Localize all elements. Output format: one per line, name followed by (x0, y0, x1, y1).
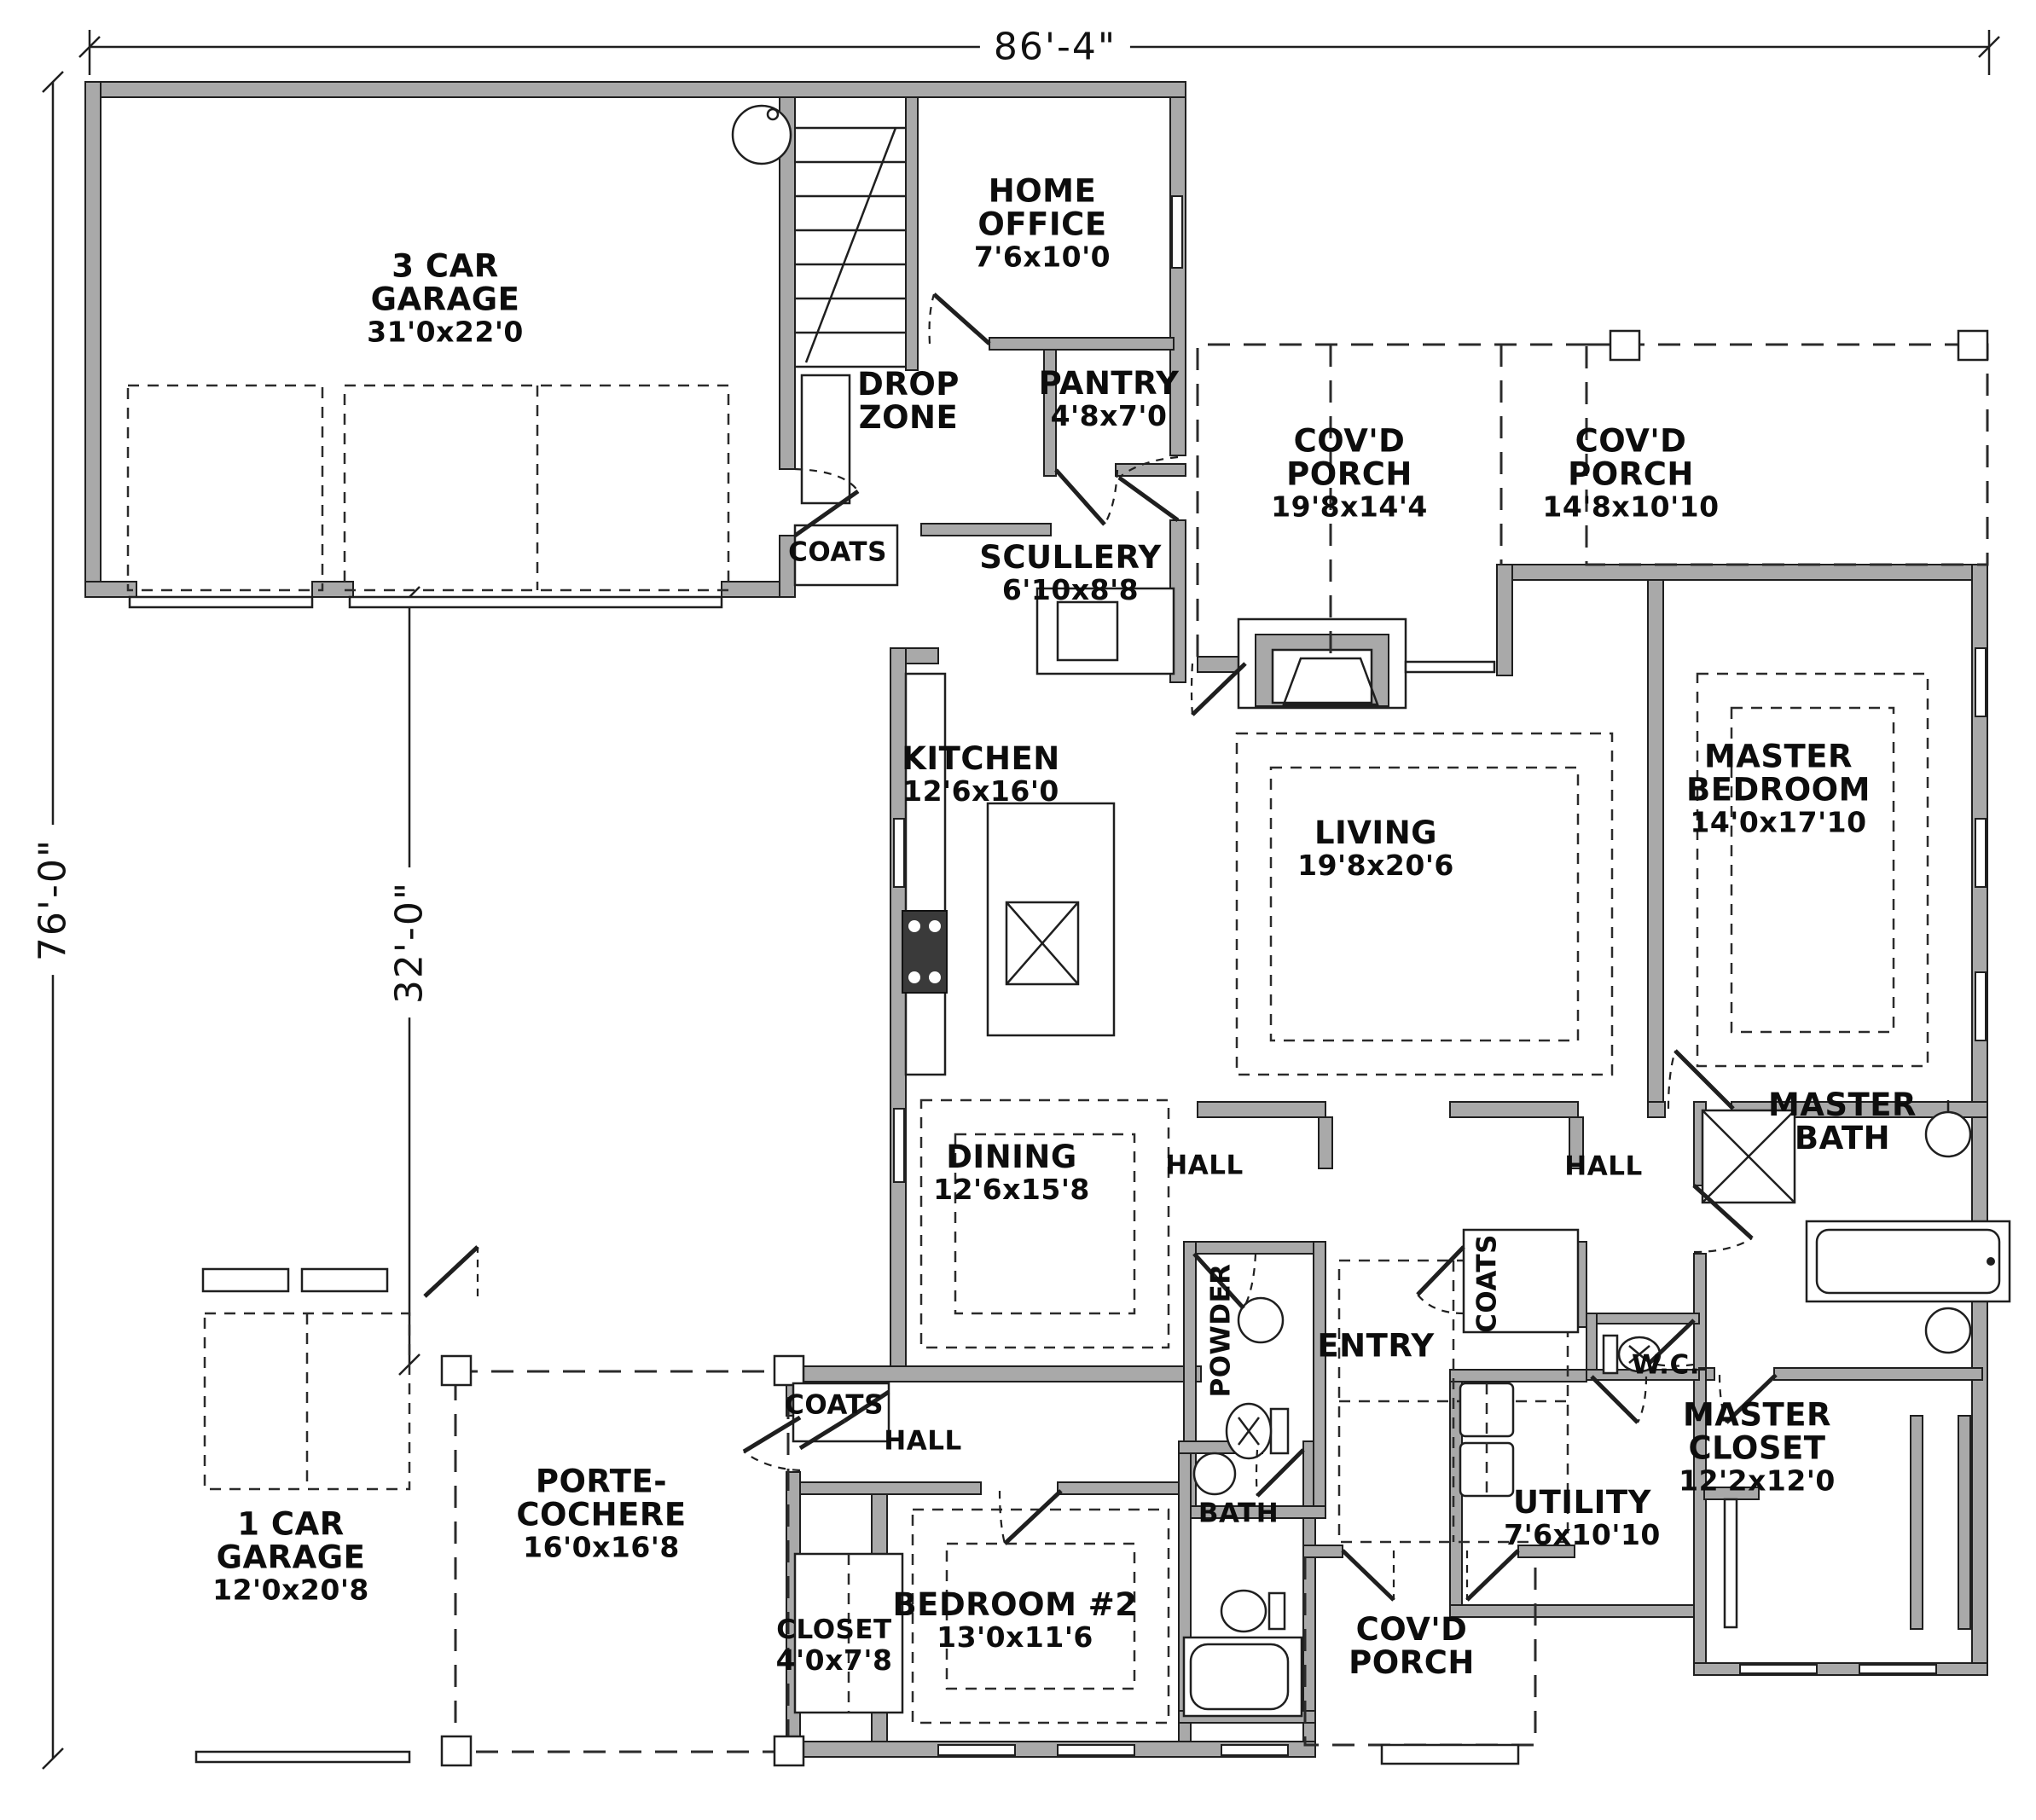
room-label-scullery: SCULLERY6'10x8'8 (979, 541, 1162, 606)
kitchen-island-icon (906, 674, 1114, 1075)
stairs-icon (795, 128, 906, 367)
range-icon (902, 911, 947, 993)
room-label-covd-porch-rear: COV'D PORCH19'8x14'4 (1271, 424, 1428, 522)
room-label-master-bath: MASTER BATH (1768, 1088, 1917, 1155)
room-label-3-car-garage: 3 CAR GARAGE31'0x22'0 (367, 249, 524, 347)
room-label-covd-porch-side: COV'D PORCH14'8x10'10 (1542, 424, 1719, 522)
room-label-dining: DINING12'6x15'8 (933, 1140, 1090, 1205)
room-label-closet2: CLOSET4'0x7'8 (776, 1616, 893, 1676)
room-label-kitchen: KITCHEN12'6x16'0 (902, 742, 1060, 807)
room-label-pantry: PANTRY4'8x7'0 (1039, 367, 1180, 432)
room-label-coats-mud: COATS (788, 539, 887, 567)
wing-depth-dimension: 32'-0" (388, 867, 432, 1017)
room-label-hall-bottom: HALL (884, 1428, 961, 1456)
overall-width-dimension: 86'-4" (980, 26, 1130, 69)
room-label-home-office: HOME OFFICE7'6x10'0 (974, 174, 1111, 272)
room-label-bedroom-2: BEDROOM #213'0x11'6 (892, 1588, 1137, 1653)
room-label-living: LIVING19'8x20'6 (1297, 816, 1454, 881)
room-label-hall-center: HALL (1165, 1152, 1243, 1180)
room-label-bath2: BATH (1198, 1500, 1279, 1528)
room-label-1-car-garage: 1 CAR GARAGE12'0x20'8 (212, 1507, 369, 1605)
bath2-fixtures (1184, 1453, 1302, 1716)
room-label-hall-right: HALL (1564, 1153, 1642, 1181)
washer-dryer-icon (1460, 1383, 1513, 1496)
room-label-entry: ENTRY (1317, 1329, 1434, 1362)
bathtub-icon (1807, 1221, 2010, 1301)
room-label-powder: POWDER (1208, 1263, 1236, 1397)
floor-plan-sheet: 86'-4" 76'-0" 32'-0" 3 CAR GARAGE31'0x22… (0, 0, 2036, 1820)
room-label-utility: UTILITY7'6x10'10 (1504, 1486, 1661, 1550)
room-label-wc: W.C. (1632, 1352, 1700, 1380)
room-label-porte-cochere: PORTE- COCHERE16'0x16'8 (516, 1464, 686, 1562)
room-label-coats-hall: COATS (785, 1392, 884, 1420)
room-label-drop-zone: DROP ZONE (857, 368, 960, 434)
overall-depth-dimension: 76'-0" (32, 825, 75, 975)
room-label-coats-entry: COATS (1474, 1234, 1502, 1333)
room-label-master-bedroom: MASTER BEDROOM14'0x17'10 (1686, 739, 1871, 838)
water-heater-icon (733, 106, 791, 164)
room-label-master-closet: MASTER CLOSET12'2x12'0 (1679, 1398, 1836, 1496)
fireplace-icon (1238, 619, 1494, 708)
room-label-covd-porch-front: COV'D PORCH (1349, 1613, 1475, 1679)
